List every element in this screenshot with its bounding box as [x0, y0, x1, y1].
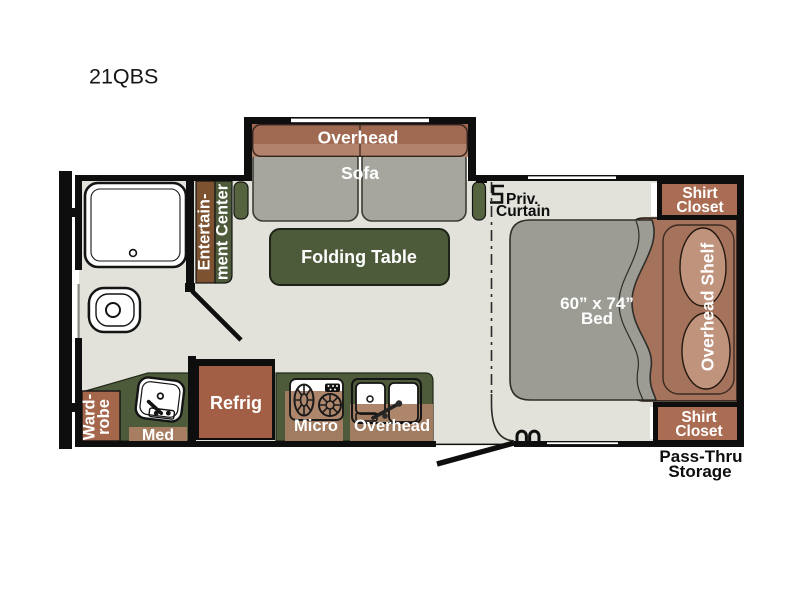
svg-text:Closet: Closet — [675, 423, 722, 440]
svg-text:21QBS: 21QBS — [89, 65, 158, 89]
svg-text:Sofa: Sofa — [341, 163, 379, 183]
svg-text:ment Center: ment Center — [214, 183, 232, 280]
svg-text:Overhead: Overhead — [318, 128, 399, 148]
svg-text:Overhead Shelf: Overhead Shelf — [698, 243, 718, 372]
svg-text:Folding Table: Folding Table — [301, 247, 417, 267]
svg-text:Curtain: Curtain — [496, 203, 550, 220]
svg-text:Micro: Micro — [294, 417, 338, 435]
svg-text:Overhead: Overhead — [354, 417, 430, 435]
svg-text:Bed: Bed — [581, 309, 613, 328]
svg-text:Entertain-: Entertain- — [196, 193, 214, 270]
svg-text:Refrig: Refrig — [210, 393, 262, 413]
svg-text:robe: robe — [95, 399, 113, 435]
svg-text:Storage: Storage — [668, 462, 731, 481]
svg-text:Closet: Closet — [676, 199, 723, 216]
